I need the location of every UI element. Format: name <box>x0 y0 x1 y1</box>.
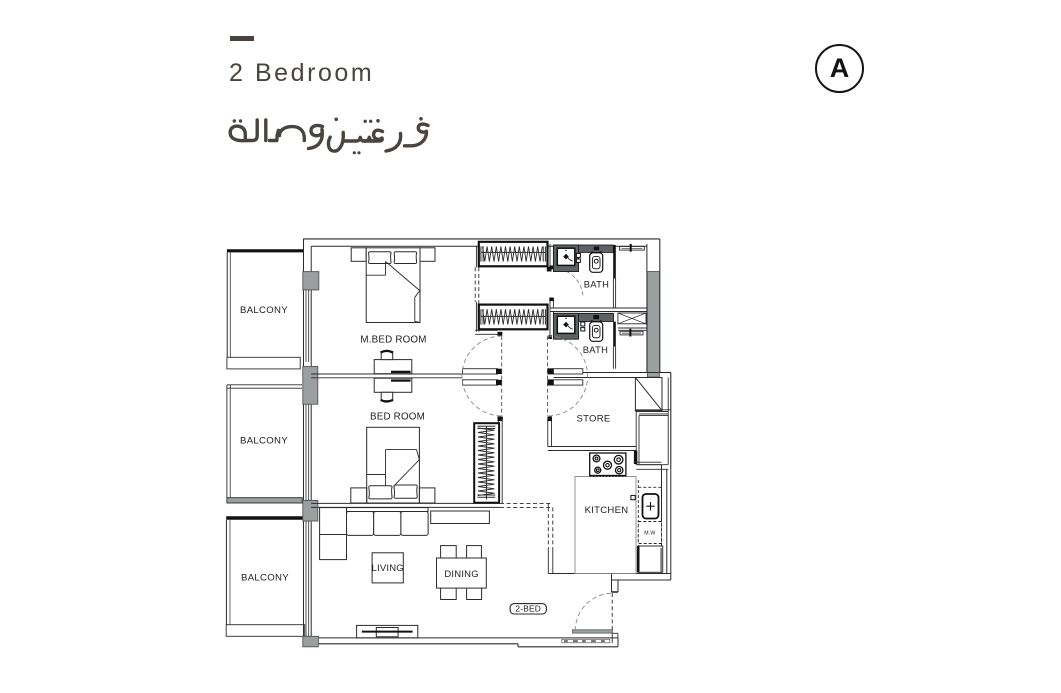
svg-text:BATH: BATH <box>583 344 609 355</box>
svg-text:KITCHEN: KITCHEN <box>585 505 629 516</box>
svg-text:M.W: M.W <box>644 531 655 537</box>
svg-text:DINING: DINING <box>444 569 478 580</box>
svg-text:BALCONY: BALCONY <box>240 305 288 316</box>
svg-text:BALCONY: BALCONY <box>240 436 288 447</box>
svg-text:BALCONY: BALCONY <box>241 573 289 584</box>
svg-text:BATH: BATH <box>584 279 610 290</box>
svg-text:BED ROOM: BED ROOM <box>370 412 425 423</box>
svg-text:LIVING: LIVING <box>372 563 404 574</box>
svg-text:STORE: STORE <box>576 414 610 425</box>
svg-text:M.BED ROOM: M.BED ROOM <box>360 335 426 346</box>
svg-text:2-BED: 2-BED <box>515 604 541 614</box>
